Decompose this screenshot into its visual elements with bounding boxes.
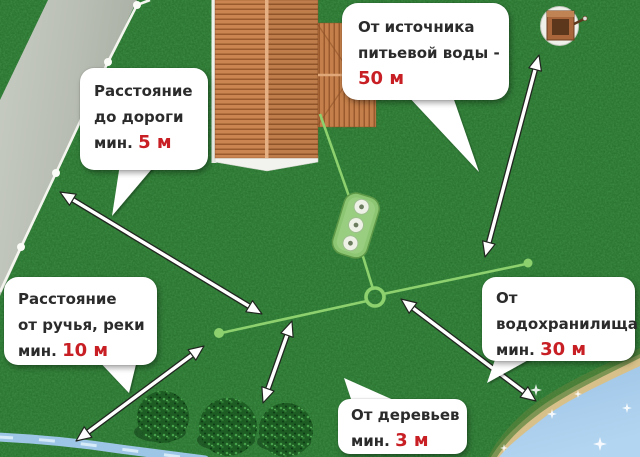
callout-reservoir-distance: От водохранилища мин. 30 м (482, 277, 635, 361)
callout-text: водохранилища (496, 311, 631, 337)
distance-value: 5 м (138, 132, 172, 153)
drain-line-end-dot (214, 328, 224, 338)
site-plan-illustration: Расстояние до дороги мин. 5 м От источни… (0, 0, 640, 457)
callout-drinking-water-distance: От источника питьевой воды - 50 м (342, 3, 509, 100)
bush (199, 398, 257, 456)
callout-text: Расстояние (18, 286, 153, 312)
callout-text: мин. (94, 134, 138, 152)
callout-text: Расстояние (94, 78, 204, 104)
callout-text: до дороги (94, 104, 204, 130)
callout-text: питьевой воды - (358, 40, 505, 66)
callout-text: От деревьев (351, 402, 463, 428)
drain-line-end-dot (524, 259, 533, 268)
distance-value: 50 м (358, 68, 404, 89)
callout-text: От источника (358, 14, 505, 40)
callout-trees-distance: От деревьев мин. 3 м (338, 399, 467, 454)
callout-text: мин. (18, 342, 62, 360)
callout-text: от ручья, реки (18, 312, 153, 338)
callout-text: мин. (496, 341, 540, 359)
distance-value: 10 м (62, 340, 108, 361)
bush (137, 391, 189, 443)
distance-value: 30 м (540, 339, 586, 360)
callout-road-distance: Расстояние до дороги мин. 5 м (80, 68, 208, 170)
bush (259, 403, 313, 457)
distance-value: 3 м (395, 430, 429, 451)
callout-text: мин. (351, 432, 395, 450)
callout-text: От (496, 285, 631, 311)
callout-stream-distance: Расстояние от ручья, реки мин. 10 м (4, 277, 157, 365)
